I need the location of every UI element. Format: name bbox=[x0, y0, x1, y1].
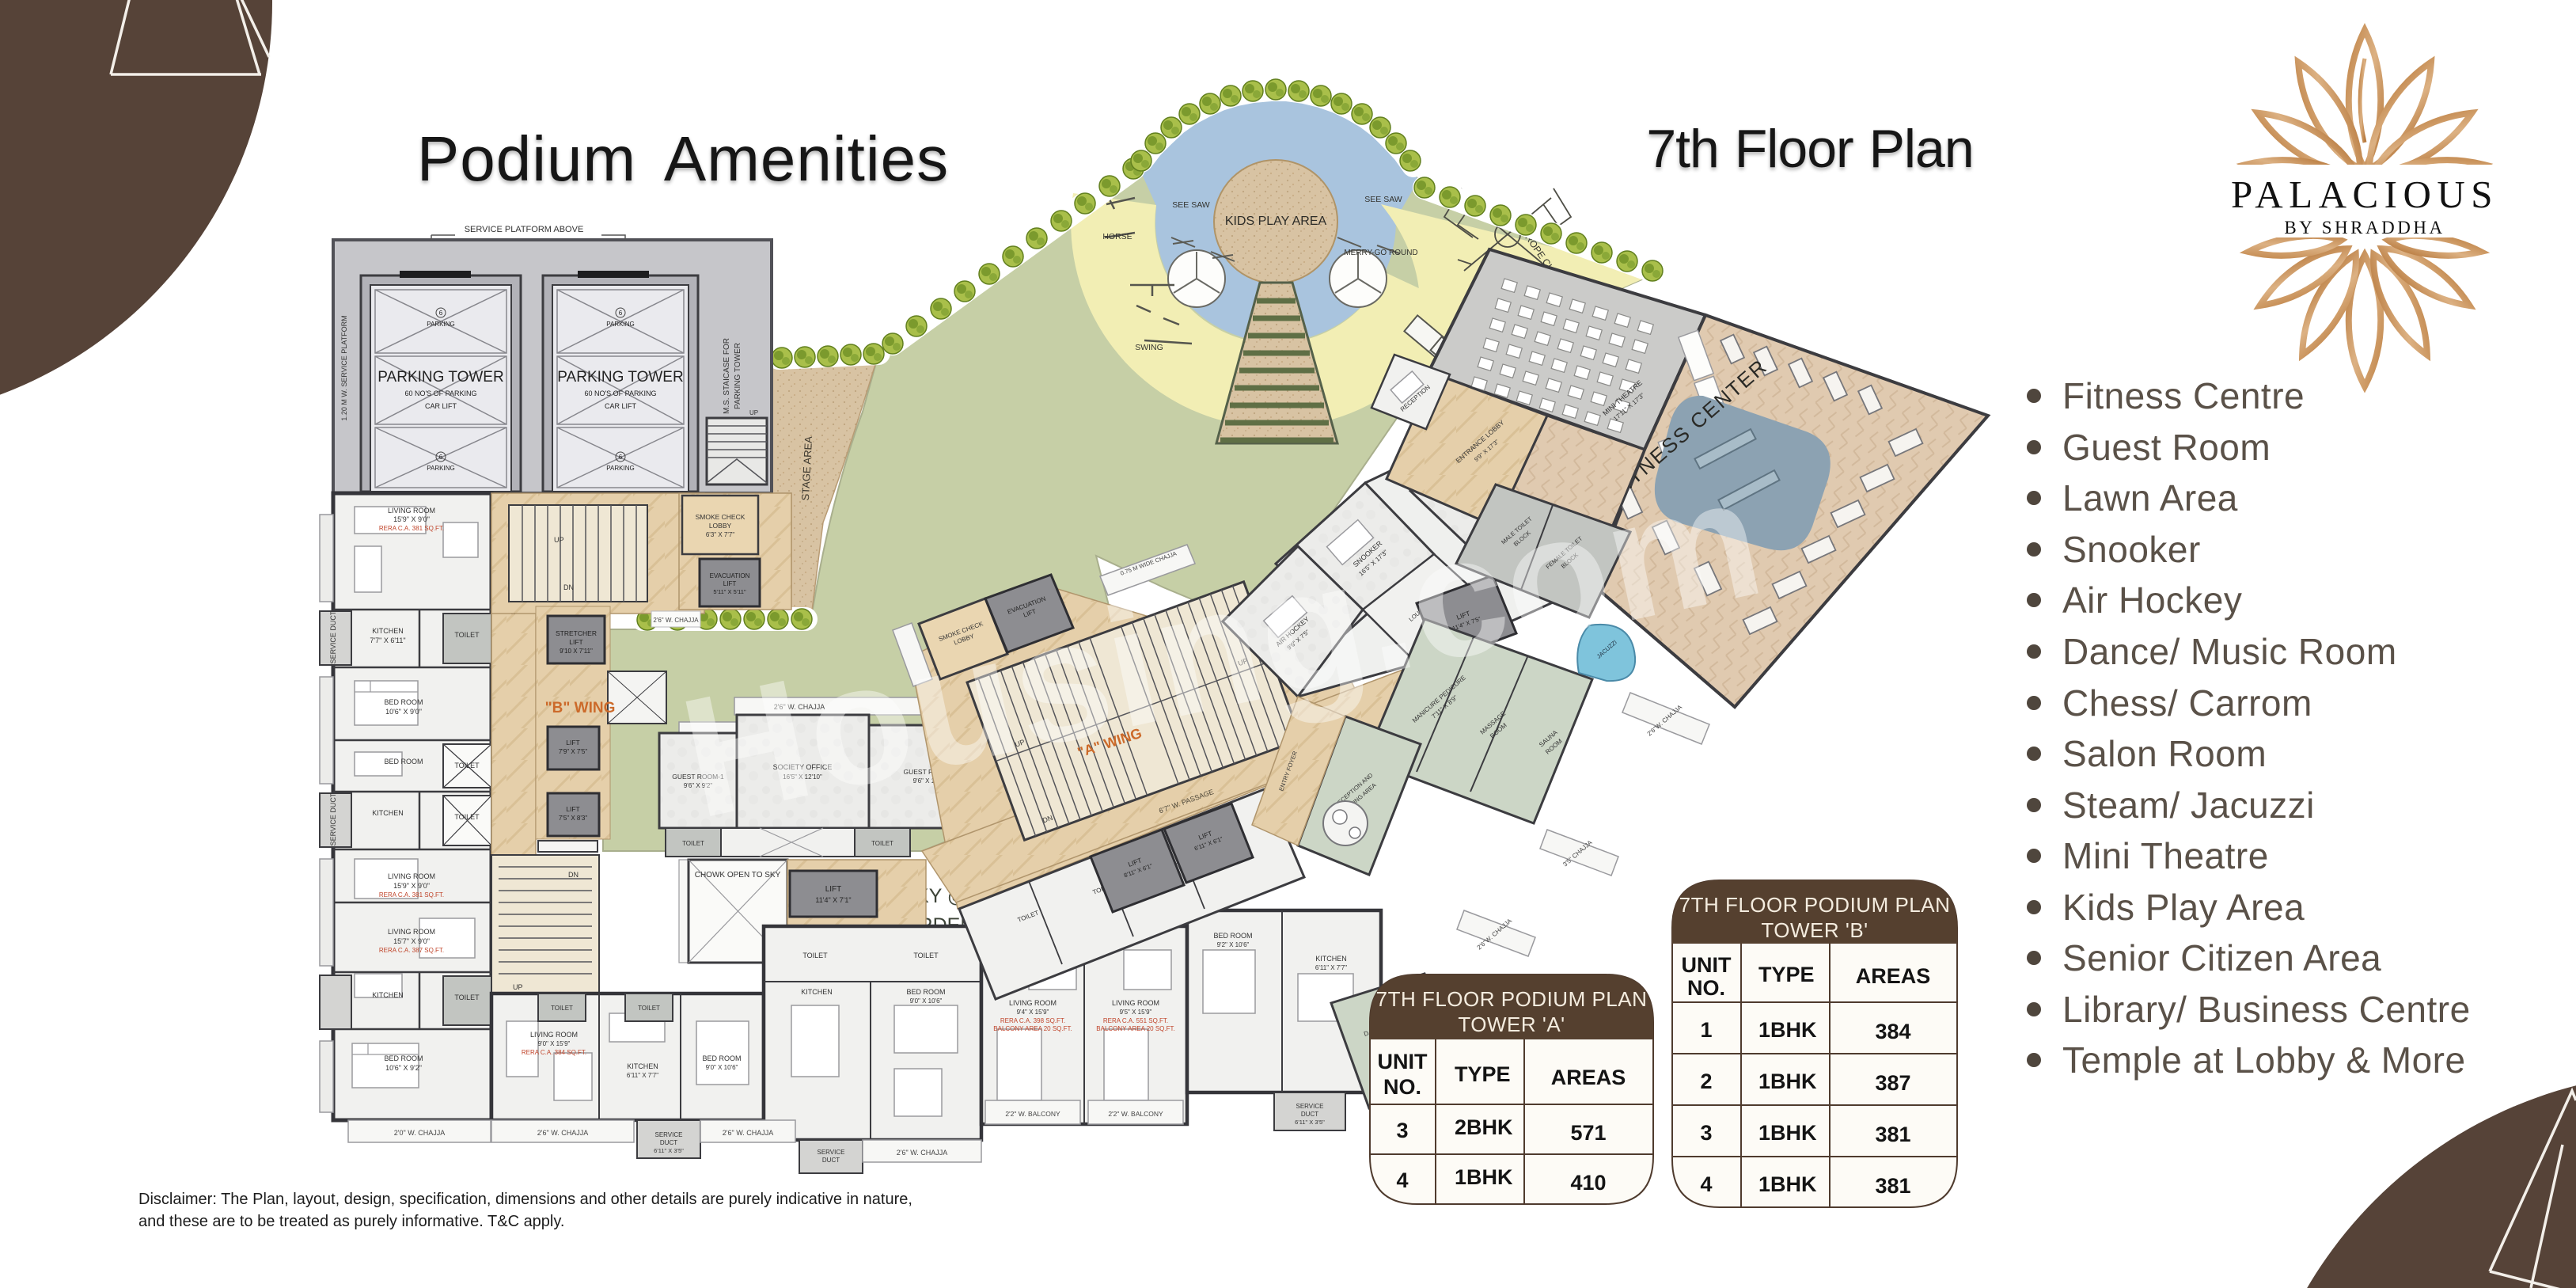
svg-text:7'7" X 6'11": 7'7" X 6'11" bbox=[370, 636, 405, 644]
svg-text:2'6" W. CHAJJA: 2'6" W. CHAJJA bbox=[897, 1149, 947, 1157]
svg-text:STRETCHER: STRETCHER bbox=[556, 629, 597, 637]
svg-text:LIFT: LIFT bbox=[825, 885, 842, 894]
svg-text:PARKING: PARKING bbox=[606, 465, 634, 472]
svg-text:DUCT: DUCT bbox=[822, 1157, 840, 1164]
svg-text:RERA C.A. 387 SQ.FT.: RERA C.A. 387 SQ.FT. bbox=[379, 947, 444, 954]
svg-text:TOILET: TOILET bbox=[454, 994, 480, 1001]
svg-text:AREAS: AREAS bbox=[1551, 1066, 1626, 1089]
svg-text:Fitness Centre: Fitness Centre bbox=[2062, 375, 2305, 416]
svg-text:EVACUATION: EVACUATION bbox=[710, 572, 750, 579]
svg-text:BALCONY AREA 20 SQ.FT.: BALCONY AREA 20 SQ.FT. bbox=[1096, 1025, 1174, 1032]
svg-text:Library/ Business Centre: Library/ Business Centre bbox=[2062, 989, 2471, 1030]
svg-text:TOILET: TOILET bbox=[551, 1005, 573, 1012]
svg-text:TOILET: TOILET bbox=[454, 813, 480, 821]
svg-text:Chess/ Carrom: Chess/ Carrom bbox=[2062, 682, 2312, 724]
svg-text:Snooker: Snooker bbox=[2062, 529, 2201, 570]
svg-text:LIFT: LIFT bbox=[569, 638, 582, 646]
svg-text:1BHK: 1BHK bbox=[1758, 1070, 1817, 1093]
svg-text:CHOWK OPEN TO SKY: CHOWK OPEN TO SKY bbox=[695, 871, 781, 880]
svg-text:15'7" X 9'0": 15'7" X 9'0" bbox=[393, 937, 430, 945]
svg-text:KIDS PLAY AREA: KIDS PLAY AREA bbox=[1225, 215, 1327, 228]
svg-text:SEE SAW: SEE SAW bbox=[1172, 200, 1210, 210]
svg-text:Salon Room: Salon Room bbox=[2062, 733, 2267, 774]
svg-text:BED ROOM: BED ROOM bbox=[384, 698, 423, 706]
svg-text:Kids Play Area: Kids Play Area bbox=[2062, 887, 2305, 928]
svg-text:1BHK: 1BHK bbox=[1758, 1121, 1817, 1145]
svg-text:SERVICE DUCT: SERVICE DUCT bbox=[329, 610, 337, 663]
svg-text:DN: DN bbox=[563, 583, 574, 591]
svg-text:TOILET: TOILET bbox=[638, 1005, 660, 1012]
svg-text:6'11" X 7'7": 6'11" X 7'7" bbox=[1315, 964, 1347, 971]
svg-text:2BHK: 2BHK bbox=[1455, 1115, 1513, 1139]
svg-text:NO.: NO. bbox=[1383, 1075, 1421, 1099]
svg-text:2'0" W. CHAJJA: 2'0" W. CHAJJA bbox=[394, 1129, 445, 1137]
svg-text:BED ROOM: BED ROOM bbox=[384, 758, 423, 766]
svg-text:KITCHEN: KITCHEN bbox=[801, 988, 833, 996]
svg-text:381: 381 bbox=[1875, 1174, 1910, 1198]
svg-text:60 NO'S OF PARKING: 60 NO'S OF PARKING bbox=[584, 389, 656, 397]
svg-text:DUCT: DUCT bbox=[1301, 1111, 1318, 1118]
svg-text:AREAS: AREAS bbox=[1856, 964, 1931, 988]
svg-text:LIFT: LIFT bbox=[723, 580, 737, 587]
svg-text:2'2" W. BALCONY: 2'2" W. BALCONY bbox=[1108, 1110, 1163, 1118]
svg-text:BED ROOM: BED ROOM bbox=[702, 1054, 741, 1062]
svg-text:2'6" W. CHAJJA: 2'6" W. CHAJJA bbox=[723, 1129, 773, 1137]
svg-text:BED ROOM: BED ROOM bbox=[1213, 932, 1252, 940]
svg-text:TOILET: TOILET bbox=[682, 840, 704, 847]
svg-text:387: 387 bbox=[1875, 1071, 1910, 1095]
svg-text:7'9" X 7'5": 7'9" X 7'5" bbox=[559, 748, 587, 755]
svg-text:6: 6 bbox=[439, 454, 443, 461]
svg-text:MERRY-GO ROUND: MERRY-GO ROUND bbox=[1344, 249, 1417, 257]
svg-text:15'9" X 9'0": 15'9" X 9'0" bbox=[393, 515, 430, 523]
svg-text:SERVICE: SERVICE bbox=[818, 1149, 845, 1156]
svg-text:LIVING ROOM: LIVING ROOM bbox=[388, 872, 435, 880]
svg-text:384: 384 bbox=[1875, 1020, 1910, 1043]
svg-text:RERA C.A. 384 SQ.FT.: RERA C.A. 384 SQ.FT. bbox=[522, 1049, 586, 1056]
svg-text:TOILET: TOILET bbox=[454, 631, 480, 639]
svg-text:LIVING ROOM: LIVING ROOM bbox=[530, 1031, 578, 1039]
svg-text:1BHK: 1BHK bbox=[1758, 1018, 1817, 1042]
svg-text:10'6" X 9'2": 10'6" X 9'2" bbox=[385, 1064, 422, 1072]
svg-text:7TH FLOOR PODIUM PLAN: 7TH FLOOR PODIUM PLAN bbox=[1376, 987, 1648, 1011]
svg-text:Temple at Lobby & More: Temple at Lobby & More bbox=[2062, 1039, 2466, 1081]
svg-text:UNIT: UNIT bbox=[1378, 1050, 1428, 1073]
svg-text:Steam/ Jacuzzi: Steam/ Jacuzzi bbox=[2062, 785, 2315, 826]
svg-text:Disclaimer: The Plan, layout,: Disclaimer: The Plan, layout, design, sp… bbox=[138, 1191, 912, 1208]
svg-text:9'0" X 10'6": 9'0" X 10'6" bbox=[706, 1064, 738, 1071]
svg-text:RERA C.A. 551 SQ.FT.: RERA C.A. 551 SQ.FT. bbox=[1103, 1017, 1168, 1024]
svg-text:SERVICE PLATFORM ABOVE: SERVICE PLATFORM ABOVE bbox=[465, 225, 584, 234]
svg-text:11'4" X 7'1": 11'4" X 7'1" bbox=[815, 896, 851, 904]
svg-text:9'5" X 15'9": 9'5" X 15'9" bbox=[1120, 1009, 1152, 1016]
svg-text:PARKING: PARKING bbox=[427, 465, 454, 472]
svg-text:PARKING TOWER: PARKING TOWER bbox=[557, 369, 683, 386]
svg-text:6'11" X 7'7": 6'11" X 7'7" bbox=[627, 1072, 658, 1079]
svg-text:TOILET: TOILET bbox=[802, 952, 828, 959]
svg-text:Senior Citizen Area: Senior Citizen Area bbox=[2062, 937, 2381, 978]
svg-text:SMOKE CHECK: SMOKE CHECK bbox=[696, 513, 745, 521]
svg-text:9'10 X 7'11": 9'10 X 7'11" bbox=[560, 648, 593, 655]
svg-text:SWING: SWING bbox=[1135, 343, 1163, 352]
svg-text:DUCT: DUCT bbox=[660, 1139, 677, 1146]
svg-text:571: 571 bbox=[1570, 1121, 1606, 1145]
svg-text:SEE SAW: SEE SAW bbox=[1364, 195, 1402, 204]
svg-text:M.S. STAICASE FOR: M.S. STAICASE FOR bbox=[723, 338, 731, 414]
svg-text:2'6" W. CHAJJA: 2'6" W. CHAJJA bbox=[653, 617, 699, 624]
svg-text:LIVING ROOM: LIVING ROOM bbox=[388, 507, 435, 515]
svg-text:KITCHEN: KITCHEN bbox=[372, 991, 404, 999]
svg-text:UP: UP bbox=[513, 983, 523, 991]
svg-text:TYPE: TYPE bbox=[1758, 963, 1815, 986]
svg-text:SERVICE DUCT: SERVICE DUCT bbox=[329, 792, 337, 845]
svg-text:LIVING ROOM: LIVING ROOM bbox=[388, 928, 435, 936]
svg-text:TYPE: TYPE bbox=[1455, 1062, 1511, 1086]
svg-text:CAR LIFT: CAR LIFT bbox=[425, 402, 457, 410]
svg-text:10'6" X 9'0": 10'6" X 9'0" bbox=[385, 708, 422, 716]
svg-text:Dance/ Music Room: Dance/ Music Room bbox=[2062, 631, 2397, 672]
svg-text:UP: UP bbox=[554, 536, 564, 544]
svg-text:2'2" W. BALCONY: 2'2" W. BALCONY bbox=[1005, 1110, 1060, 1118]
svg-text:LIFT: LIFT bbox=[566, 739, 579, 747]
svg-text:NO.: NO. bbox=[1687, 976, 1725, 1000]
svg-text:RERA C.A. 381 SQ.FT.: RERA C.A. 381 SQ.FT. bbox=[379, 525, 444, 532]
svg-text:SERVICE: SERVICE bbox=[1296, 1103, 1324, 1110]
svg-text:LIFT: LIFT bbox=[566, 805, 579, 813]
svg-text:9'0" X 10'6": 9'0" X 10'6" bbox=[910, 997, 943, 1005]
svg-text:PALACIOUS: PALACIOUS bbox=[2231, 173, 2498, 216]
svg-text:Lawn Area: Lawn Area bbox=[2062, 477, 2238, 519]
svg-text:LIVING ROOM: LIVING ROOM bbox=[1112, 999, 1159, 1007]
svg-text:PARKING: PARKING bbox=[606, 321, 634, 328]
svg-text:1BHK: 1BHK bbox=[1455, 1165, 1513, 1189]
svg-text:CAR LIFT: CAR LIFT bbox=[605, 402, 637, 410]
svg-text:UNIT: UNIT bbox=[1682, 953, 1732, 977]
svg-text:9'2" X 10'6": 9'2" X 10'6" bbox=[1217, 941, 1250, 948]
svg-text:PARKING: PARKING bbox=[427, 321, 454, 328]
svg-text:60 NO'S OF PARKING: 60 NO'S OF PARKING bbox=[404, 389, 476, 397]
svg-text:DN: DN bbox=[568, 871, 579, 879]
svg-text:381: 381 bbox=[1875, 1123, 1910, 1146]
svg-text:1: 1 bbox=[1700, 1018, 1712, 1042]
svg-text:TOWER 'A': TOWER 'A' bbox=[1458, 1013, 1565, 1036]
svg-text:410: 410 bbox=[1570, 1171, 1606, 1195]
svg-text:BED ROOM: BED ROOM bbox=[384, 1054, 423, 1062]
svg-text:4: 4 bbox=[1396, 1168, 1408, 1192]
svg-text:9'0" X 15'9": 9'0" X 15'9" bbox=[538, 1040, 571, 1047]
svg-text:BALCONY AREA 20 SQ.FT.: BALCONY AREA 20 SQ.FT. bbox=[993, 1025, 1072, 1032]
svg-text:7th Floor Plan: 7th Floor Plan bbox=[1646, 119, 1973, 179]
svg-text:6: 6 bbox=[619, 310, 623, 317]
svg-text:RERA C.A. 398 SQ.FT.: RERA C.A. 398 SQ.FT. bbox=[1000, 1017, 1065, 1024]
svg-text:2: 2 bbox=[1700, 1070, 1712, 1093]
svg-text:LIVING ROOM: LIVING ROOM bbox=[1009, 999, 1057, 1007]
svg-text:9'4" X 15'9": 9'4" X 15'9" bbox=[1017, 1009, 1049, 1016]
svg-text:6: 6 bbox=[619, 454, 623, 461]
svg-text:6'11" X 3'5": 6'11" X 3'5" bbox=[654, 1147, 684, 1154]
svg-text:TOWER 'B': TOWER 'B' bbox=[1761, 918, 1868, 942]
svg-text:Guest Room: Guest Room bbox=[2062, 427, 2271, 468]
svg-text:Mini Theatre: Mini Theatre bbox=[2062, 835, 2269, 876]
svg-text:5'11" X 5'11": 5'11" X 5'11" bbox=[713, 588, 746, 595]
svg-text:SERVICE: SERVICE bbox=[655, 1131, 683, 1138]
svg-text:RERA C.A. 381 SQ.FT.: RERA C.A. 381 SQ.FT. bbox=[379, 891, 444, 899]
svg-text:KITCHEN: KITCHEN bbox=[1315, 955, 1347, 963]
svg-text:and these are to be treated as: and these are to be treated as purely in… bbox=[138, 1213, 564, 1230]
svg-text:1BHK: 1BHK bbox=[1758, 1172, 1817, 1196]
svg-text:BED ROOM: BED ROOM bbox=[906, 988, 945, 996]
svg-text:KITCHEN: KITCHEN bbox=[372, 627, 404, 635]
svg-text:3: 3 bbox=[1700, 1121, 1712, 1145]
svg-text:Podium Amenities: Podium Amenities bbox=[417, 123, 949, 194]
svg-text:LOBBY: LOBBY bbox=[709, 522, 732, 530]
svg-text:"B" WING: "B" WING bbox=[545, 700, 616, 716]
svg-text:KITCHEN: KITCHEN bbox=[627, 1062, 658, 1070]
svg-text:PARKING TOWER: PARKING TOWER bbox=[377, 369, 503, 386]
svg-text:15'9" X 9'0": 15'9" X 9'0" bbox=[393, 882, 430, 890]
svg-text:HORSE: HORSE bbox=[1102, 232, 1132, 241]
svg-text:1.20 M W. SERVICE PLATFORM: 1.20 M W. SERVICE PLATFORM bbox=[340, 315, 348, 420]
svg-text:4: 4 bbox=[1700, 1172, 1712, 1196]
svg-text:2'6" W. CHAJJA: 2'6" W. CHAJJA bbox=[537, 1129, 588, 1137]
svg-text:6'3" X 7'7": 6'3" X 7'7" bbox=[706, 531, 734, 538]
svg-text:6'11" X 3'5": 6'11" X 3'5" bbox=[1295, 1119, 1325, 1126]
svg-text:PARKING TOWER: PARKING TOWER bbox=[734, 343, 742, 409]
svg-text:3: 3 bbox=[1396, 1119, 1408, 1142]
svg-text:KITCHEN: KITCHEN bbox=[372, 809, 404, 817]
svg-text:TOILET: TOILET bbox=[454, 762, 480, 769]
svg-text:TOILET: TOILET bbox=[871, 840, 893, 847]
svg-text:Air Hockey: Air Hockey bbox=[2062, 579, 2242, 621]
svg-text:TOILET: TOILET bbox=[913, 952, 939, 959]
svg-text:7TH FLOOR PODIUM PLAN: 7TH FLOOR PODIUM PLAN bbox=[1679, 893, 1951, 917]
svg-text:UP: UP bbox=[749, 409, 758, 416]
svg-text:BY SHRADDHA: BY SHRADDHA bbox=[2284, 218, 2445, 237]
svg-text:6: 6 bbox=[439, 310, 443, 317]
svg-text:7'5" X 8'3": 7'5" X 8'3" bbox=[559, 815, 587, 822]
